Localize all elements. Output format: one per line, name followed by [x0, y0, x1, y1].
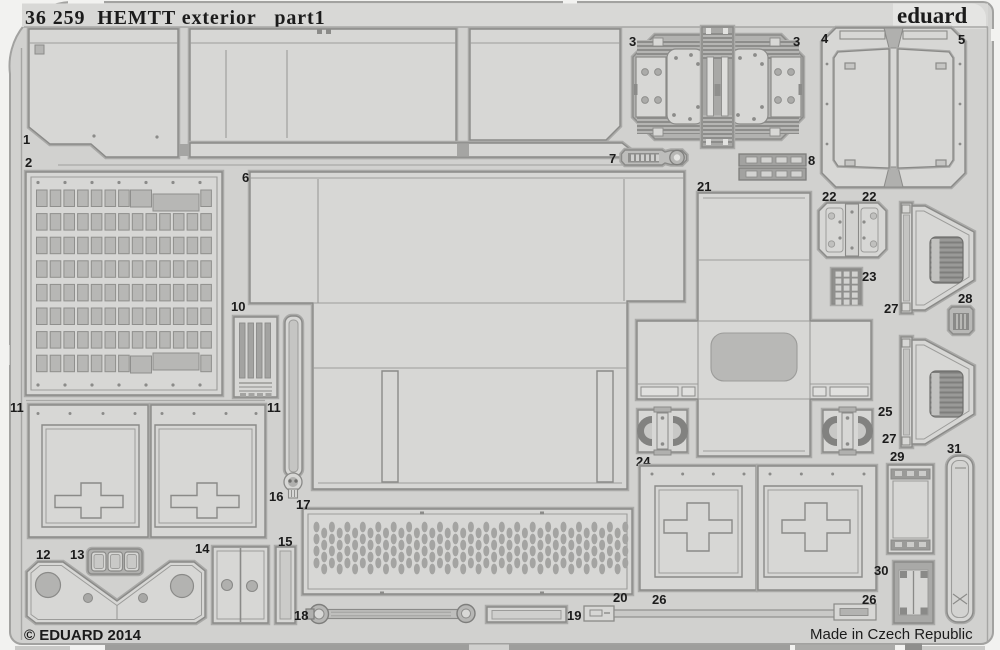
svg-text:25: 25	[878, 404, 892, 419]
svg-text:© EDUARD 2014: © EDUARD 2014	[24, 627, 142, 644]
svg-text:5: 5	[958, 32, 965, 47]
svg-text:27: 27	[884, 301, 898, 316]
svg-text:4: 4	[821, 31, 829, 46]
svg-text:23: 23	[862, 269, 876, 284]
svg-text:3: 3	[793, 34, 800, 49]
svg-text:1: 1	[23, 132, 30, 147]
svg-text:21: 21	[697, 179, 711, 194]
svg-text:18: 18	[294, 608, 308, 623]
svg-text:26: 26	[652, 592, 666, 607]
svg-text:2: 2	[25, 155, 32, 170]
svg-text:11: 11	[267, 400, 281, 415]
svg-text:29: 29	[890, 449, 904, 464]
svg-text:27: 27	[882, 431, 896, 446]
svg-text:28: 28	[958, 291, 972, 306]
svg-text:Made in Czech Republic: Made in Czech Republic	[810, 626, 973, 643]
svg-text:14: 14	[195, 541, 210, 556]
svg-text:31: 31	[947, 441, 961, 456]
svg-text:20: 20	[613, 590, 627, 605]
svg-text:26: 26	[862, 592, 876, 607]
svg-text:eduard: eduard	[897, 3, 968, 28]
svg-text:11: 11	[10, 400, 24, 415]
svg-text:13: 13	[70, 547, 84, 562]
svg-text:30: 30	[874, 563, 888, 578]
svg-text:22: 22	[822, 189, 836, 204]
svg-text:12: 12	[36, 547, 50, 562]
svg-text:36 259 HEMTT exterior part1: 36 259 HEMTT exterior part1	[25, 7, 325, 29]
svg-text:7: 7	[609, 151, 616, 166]
svg-text:17: 17	[296, 497, 310, 512]
svg-text:8: 8	[808, 153, 815, 168]
svg-text:19: 19	[567, 608, 581, 623]
svg-text:15: 15	[278, 534, 292, 549]
svg-text:16: 16	[269, 489, 283, 504]
svg-text:6: 6	[242, 170, 249, 185]
svg-text:22: 22	[862, 189, 876, 204]
svg-text:10: 10	[231, 299, 245, 314]
svg-text:3: 3	[629, 34, 636, 49]
